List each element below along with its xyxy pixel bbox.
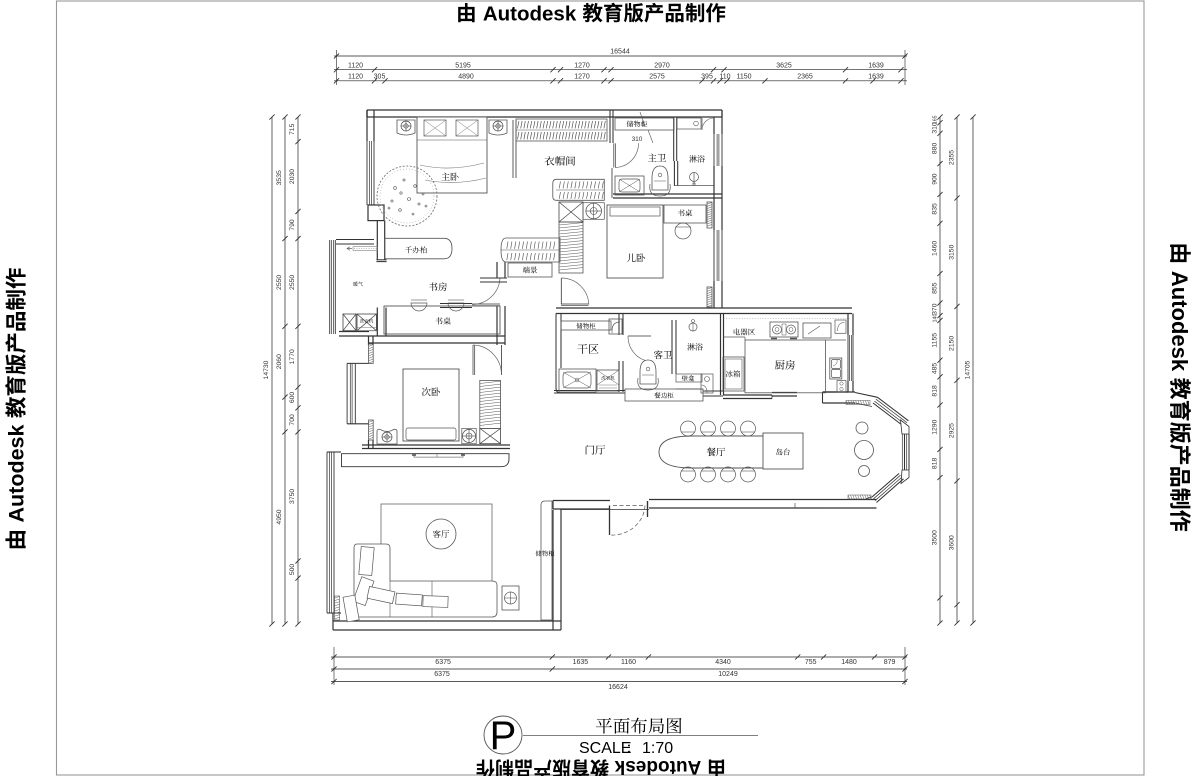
svg-text:3150: 3150 <box>949 244 956 259</box>
svg-text:879: 879 <box>884 659 896 666</box>
svg-text:1120: 1120 <box>348 73 363 80</box>
svg-text:310: 310 <box>932 122 939 134</box>
svg-text:3535: 3535 <box>276 170 283 185</box>
svg-text:310: 310 <box>632 136 643 143</box>
svg-text:700: 700 <box>289 414 296 426</box>
svg-text:600: 600 <box>289 392 296 404</box>
svg-text:2150: 2150 <box>949 336 956 351</box>
svg-text:SCALE: SCALE <box>579 740 631 757</box>
svg-text:1770: 1770 <box>289 349 296 364</box>
svg-text:1150: 1150 <box>736 73 751 80</box>
svg-text:2550: 2550 <box>276 275 283 290</box>
svg-text:Autodesk: Autodesk <box>1167 271 1192 372</box>
svg-text:2970: 2970 <box>654 62 670 69</box>
svg-text:4340: 4340 <box>715 659 731 666</box>
svg-text:1160: 1160 <box>621 659 636 666</box>
svg-text:2550: 2550 <box>289 275 296 290</box>
svg-text:16624: 16624 <box>608 684 628 691</box>
svg-text:1460: 1460 <box>932 241 939 256</box>
svg-text:835: 835 <box>932 203 939 215</box>
svg-text:6375: 6375 <box>435 659 451 666</box>
svg-text:1290: 1290 <box>932 419 939 434</box>
svg-text:2925: 2925 <box>949 423 956 438</box>
svg-text:2355: 2355 <box>949 150 956 165</box>
svg-text:1155: 1155 <box>932 333 939 348</box>
svg-text:2060: 2060 <box>276 354 283 369</box>
svg-text:3625: 3625 <box>776 62 792 69</box>
svg-text:485: 485 <box>932 363 939 375</box>
svg-text:P: P <box>490 714 517 758</box>
svg-text:2365: 2365 <box>797 73 813 80</box>
svg-text:10249: 10249 <box>718 671 738 678</box>
svg-text:6375: 6375 <box>434 671 450 678</box>
svg-text:Autodesk: Autodesk <box>614 756 701 776</box>
svg-text:900: 900 <box>932 173 939 185</box>
svg-text:Autodesk: Autodesk <box>483 2 577 25</box>
svg-text:1639: 1639 <box>868 73 884 80</box>
svg-text:818: 818 <box>932 458 939 470</box>
svg-text:2575: 2575 <box>649 73 665 80</box>
svg-text:1270: 1270 <box>574 73 590 80</box>
svg-text:3750: 3750 <box>289 489 296 504</box>
svg-text:305: 305 <box>374 73 386 80</box>
svg-text:2030: 2030 <box>289 169 296 184</box>
svg-text:755: 755 <box>805 659 817 666</box>
svg-text:1270: 1270 <box>574 62 590 69</box>
svg-text:3500: 3500 <box>932 530 939 545</box>
svg-text:4950: 4950 <box>276 509 283 524</box>
svg-text:818: 818 <box>932 385 939 397</box>
svg-text:110: 110 <box>719 73 730 80</box>
svg-text:500: 500 <box>289 564 296 576</box>
svg-text:3600: 3600 <box>949 535 956 550</box>
svg-text:715: 715 <box>289 123 296 135</box>
svg-text:4890: 4890 <box>458 73 474 80</box>
svg-text:395: 395 <box>701 73 713 80</box>
svg-text:1480: 1480 <box>841 659 857 666</box>
svg-text:1120: 1120 <box>348 62 363 69</box>
svg-text:14705: 14705 <box>965 360 972 379</box>
svg-text:5195: 5195 <box>455 62 471 69</box>
svg-text:14730: 14730 <box>263 360 270 379</box>
svg-text:790: 790 <box>289 219 296 231</box>
svg-text:1:70: 1:70 <box>642 740 673 757</box>
svg-text:140: 140 <box>933 314 939 323</box>
svg-text:16544: 16544 <box>610 49 630 56</box>
svg-text:1635: 1635 <box>573 659 589 666</box>
svg-text:Autodesk: Autodesk <box>5 425 29 523</box>
svg-text:1639: 1639 <box>868 62 884 69</box>
svg-text:855: 855 <box>932 282 939 294</box>
svg-text:880: 880 <box>932 143 939 155</box>
svg-text:370: 370 <box>932 303 939 315</box>
